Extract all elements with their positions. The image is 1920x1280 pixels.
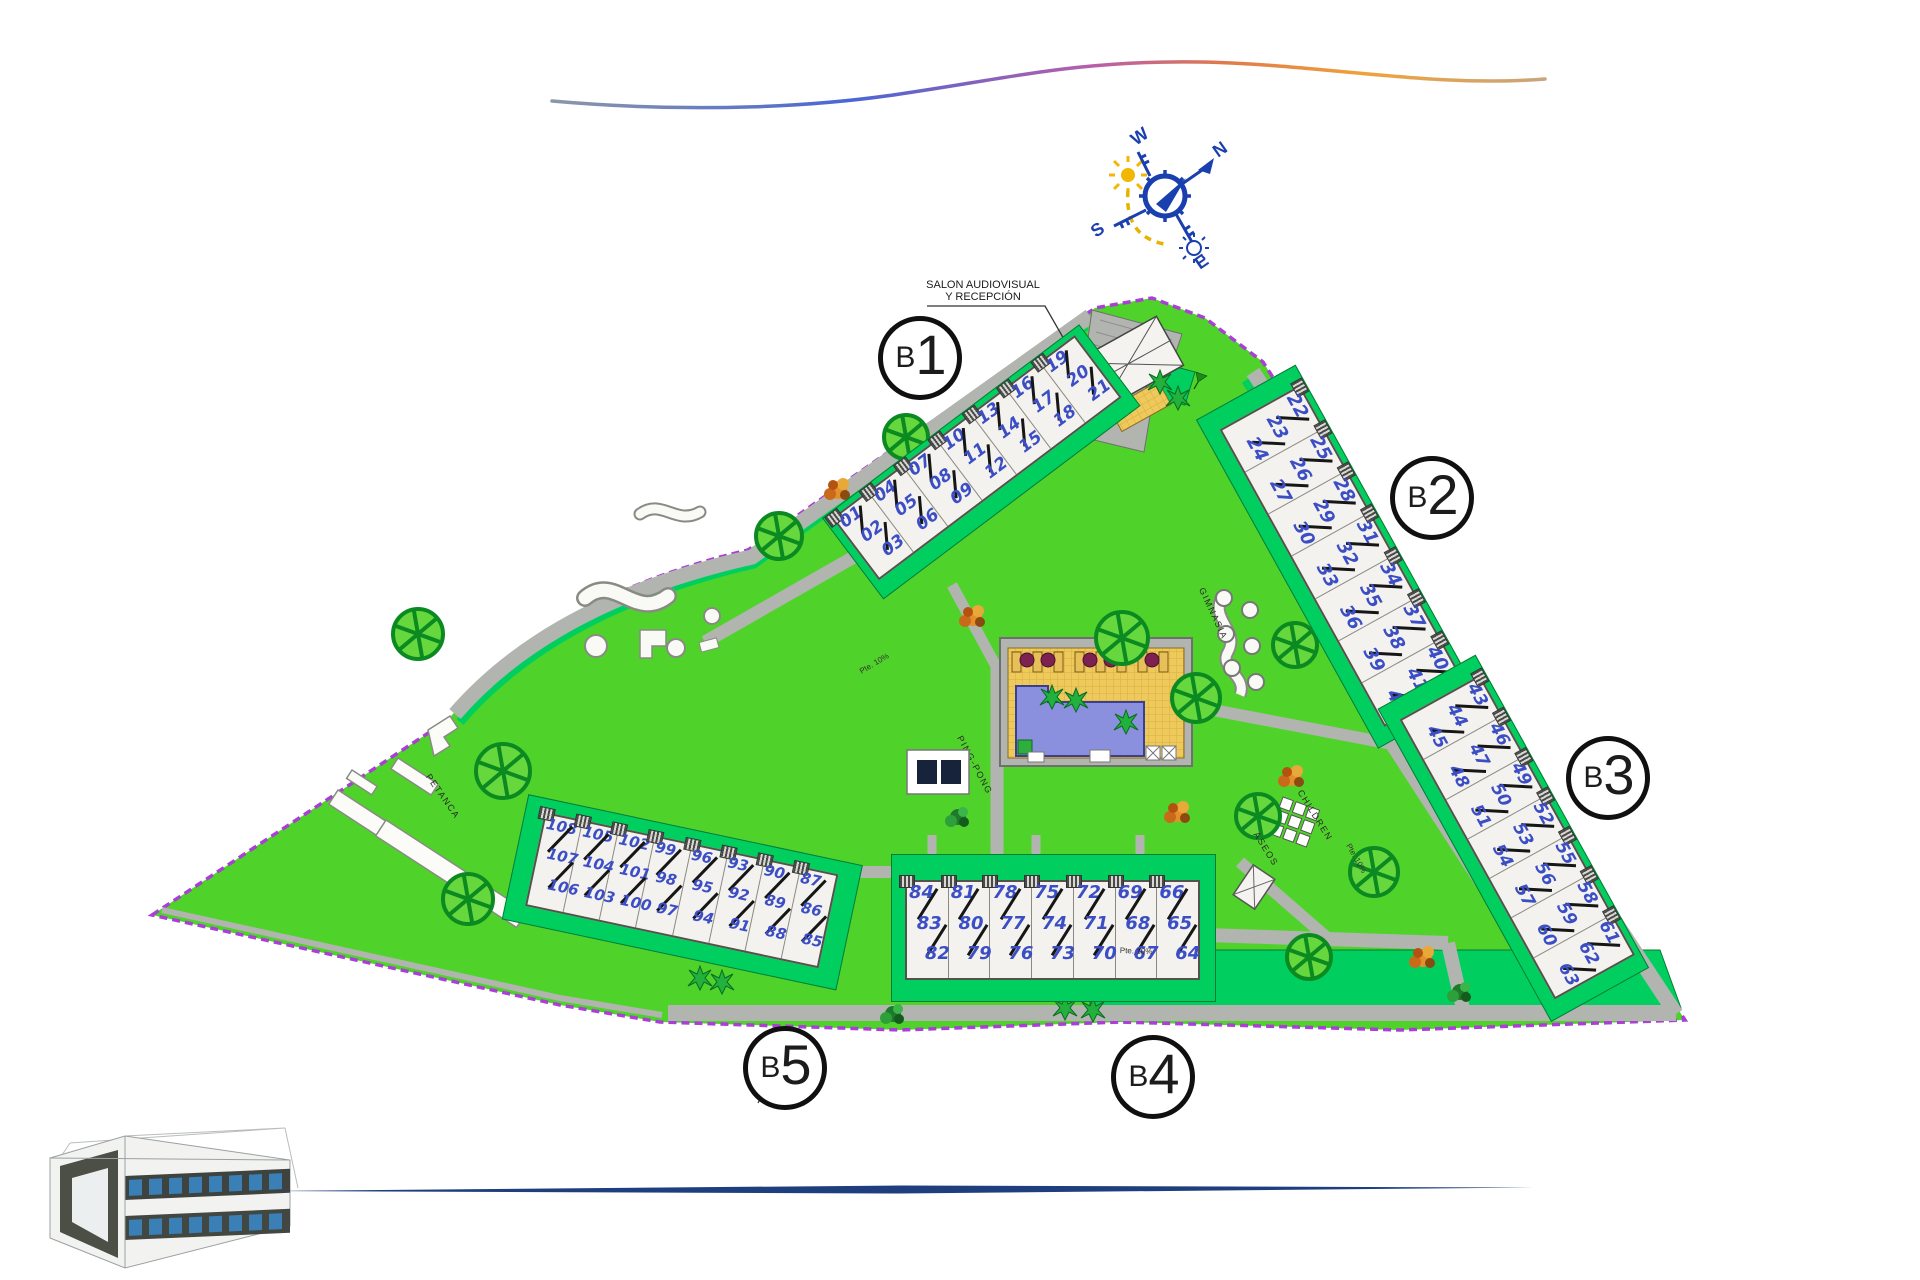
unit-cell: 848382: [907, 882, 949, 978]
ping-pong-table: [905, 748, 985, 808]
unit-cell: 818079: [949, 882, 991, 978]
block-badge-b5: B 5: [743, 1026, 827, 1110]
unit-number: 77: [1000, 915, 1025, 933]
wheel-tree: [1172, 674, 1220, 722]
unit-number: 86: [800, 901, 824, 920]
badge-digit: 5: [780, 1037, 809, 1093]
callout-line2: Y RECEPCIÓN: [918, 291, 1048, 303]
block-badge-b1: B 1: [878, 316, 962, 400]
badge-prefix: B: [1583, 763, 1603, 793]
badge-digit: 1: [915, 327, 944, 383]
unit-number: 63: [1555, 961, 1581, 990]
badge-prefix: B: [1407, 483, 1427, 513]
compass-s: S: [1087, 218, 1108, 241]
reception-callout: SALON AUDIOVISUAL Y RECEPCIÓN: [918, 279, 1048, 303]
unit-number: 94: [692, 908, 716, 927]
wheel-tree: [443, 874, 493, 924]
unit-number: 68: [1125, 915, 1150, 933]
wheel-tree: [1273, 623, 1317, 667]
block-badge-b3: B 3: [1566, 736, 1650, 820]
unit-number: 89: [763, 893, 787, 912]
unit-number: 91: [728, 916, 752, 935]
badge-digit: 4: [1148, 1046, 1177, 1102]
compass-w: W: [1127, 123, 1152, 149]
unit-cell: 757473: [1032, 882, 1074, 978]
unit-cell: 727170: [1074, 882, 1116, 978]
site-plan-canvas: W N S E SALON AUDIOVISUAL Y RECEPCIÓN 01…: [0, 0, 1920, 1280]
badge-digit: 2: [1427, 467, 1456, 523]
wheel-tree: [393, 609, 443, 659]
wheel-tree: [1096, 612, 1148, 664]
footer-rule-line: [0, 1180, 1920, 1200]
block-badge-b2: B 2: [1390, 456, 1474, 540]
wheel-tree: [756, 513, 802, 559]
building-block-b4: 8483828180797877767574737271706968676665…: [905, 880, 1200, 980]
block-b4-bar: 8483828180797877767574737271706968676665…: [905, 880, 1200, 980]
badge-prefix: B: [1128, 1062, 1148, 1092]
block-badge-b4: B 4: [1111, 1035, 1195, 1119]
unit-cell: 787776: [990, 882, 1032, 978]
unit-number: 88: [764, 923, 788, 942]
unit-number: 83: [917, 915, 942, 933]
unit-number: 85: [801, 931, 825, 950]
ramp-annotation: Pte. 10%: [1120, 946, 1153, 956]
unit-number: 79: [967, 945, 992, 963]
unit-number: 70: [1092, 945, 1117, 963]
badge-digit: 3: [1603, 747, 1632, 803]
compass-rose: W N S E: [1080, 118, 1290, 298]
badge-prefix: B: [760, 1053, 780, 1083]
unit-number: 74: [1042, 915, 1067, 933]
unit-number: 71: [1084, 915, 1109, 933]
unit-number: 21: [1085, 377, 1114, 405]
wheel-tree: [1287, 935, 1331, 979]
badge-prefix: B: [895, 343, 915, 373]
unit-cell: 666564: [1157, 882, 1198, 978]
unit-number: 80: [958, 915, 983, 933]
wheel-tree: [476, 744, 530, 798]
unit-number: 98: [654, 870, 678, 889]
unit-number: 64: [1175, 945, 1200, 963]
unit-cell: 696867: [1116, 882, 1158, 978]
unit-number: 82: [925, 945, 950, 963]
decor-swoosh: [0, 0, 1920, 140]
callout-line1: SALON AUDIOVISUAL: [918, 279, 1048, 291]
pool-area: [1000, 638, 1192, 766]
unit-number: 65: [1167, 915, 1192, 933]
unit-number: 97: [655, 900, 679, 919]
site-map: [0, 0, 1920, 1280]
unit-number: 73: [1050, 945, 1075, 963]
unit-number: 95: [691, 878, 715, 897]
autumn-bush: [824, 478, 850, 500]
compass-n: N: [1209, 137, 1231, 161]
unit-number: 92: [727, 885, 751, 904]
unit-number: 76: [1008, 945, 1033, 963]
